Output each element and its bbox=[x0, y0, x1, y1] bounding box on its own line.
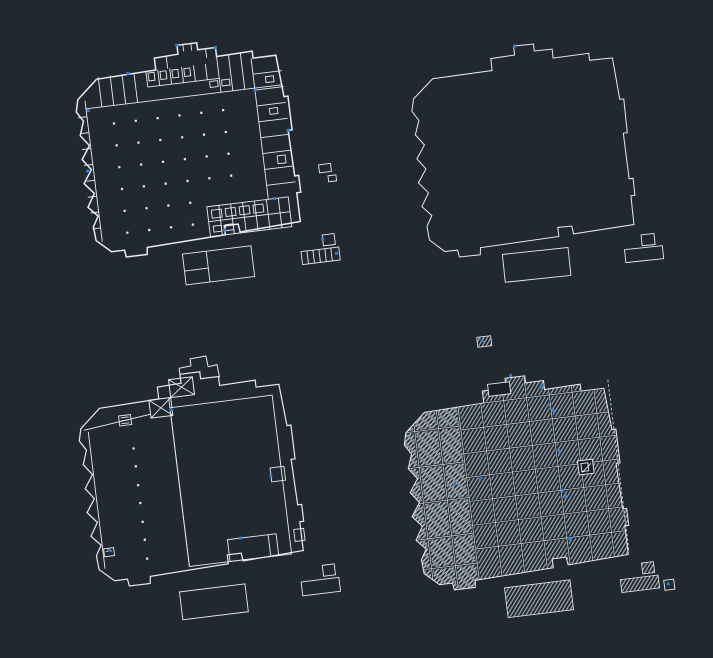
column-dot[interactable] bbox=[186, 180, 188, 182]
column-dot[interactable] bbox=[135, 120, 137, 122]
blue-marker[interactable] bbox=[561, 488, 564, 491]
column-dot[interactable] bbox=[148, 229, 150, 231]
column-dot[interactable] bbox=[126, 231, 128, 233]
hatched-annex[interactable] bbox=[641, 562, 654, 574]
blue-marker[interactable] bbox=[286, 129, 289, 132]
blue-marker[interactable] bbox=[175, 44, 178, 47]
blue-marker[interactable] bbox=[269, 473, 272, 476]
column-dot[interactable] bbox=[227, 153, 229, 155]
column-dot[interactable] bbox=[137, 484, 139, 486]
column-dot[interactable] bbox=[181, 136, 183, 138]
blue-marker[interactable] bbox=[126, 72, 129, 75]
column-dot[interactable] bbox=[118, 166, 120, 168]
column-dot[interactable] bbox=[141, 521, 143, 523]
column-dot[interactable] bbox=[170, 226, 172, 228]
column-dot[interactable] bbox=[121, 188, 123, 190]
blue-marker[interactable] bbox=[509, 374, 512, 377]
blue-marker[interactable] bbox=[87, 109, 90, 112]
blue-marker[interactable] bbox=[223, 228, 226, 231]
column-dot[interactable] bbox=[164, 182, 166, 184]
column-dot[interactable] bbox=[135, 465, 137, 467]
blue-marker[interactable] bbox=[558, 450, 561, 453]
column-dot[interactable] bbox=[225, 131, 227, 133]
column-dot[interactable] bbox=[178, 114, 180, 116]
hatched-annex[interactable] bbox=[477, 336, 492, 348]
blue-marker[interactable] bbox=[480, 339, 483, 342]
column-dot[interactable] bbox=[230, 174, 232, 176]
blue-marker[interactable] bbox=[453, 483, 456, 486]
blue-marker[interactable] bbox=[214, 46, 217, 49]
column-dot[interactable] bbox=[144, 539, 146, 541]
column-dot[interactable] bbox=[162, 161, 164, 163]
column-dot[interactable] bbox=[139, 502, 141, 504]
column-dot[interactable] bbox=[167, 204, 169, 206]
column-dot[interactable] bbox=[146, 557, 148, 559]
blue-marker[interactable] bbox=[273, 197, 276, 200]
blue-marker[interactable] bbox=[540, 385, 543, 388]
model-space-background[interactable] bbox=[0, 0, 713, 658]
blue-marker[interactable] bbox=[107, 549, 110, 552]
blue-marker[interactable] bbox=[667, 582, 670, 585]
blue-marker[interactable] bbox=[253, 88, 256, 91]
column-dot[interactable] bbox=[145, 207, 147, 209]
column-dot[interactable] bbox=[115, 144, 117, 146]
column-dot[interactable] bbox=[140, 163, 142, 165]
blue-marker[interactable] bbox=[552, 409, 555, 412]
column-dot[interactable] bbox=[159, 139, 161, 141]
column-dot[interactable] bbox=[123, 210, 125, 212]
column-dot[interactable] bbox=[205, 155, 207, 157]
column-dot[interactable] bbox=[156, 117, 158, 119]
column-dot[interactable] bbox=[137, 141, 139, 143]
drawing-canvas[interactable] bbox=[0, 0, 713, 658]
column-dot[interactable] bbox=[143, 185, 145, 187]
blue-marker[interactable] bbox=[478, 477, 481, 480]
roof-hatch-opening[interactable] bbox=[578, 459, 595, 475]
blue-marker[interactable] bbox=[335, 252, 338, 255]
column-dot[interactable] bbox=[200, 112, 202, 114]
column-dot[interactable] bbox=[189, 202, 191, 204]
blue-marker[interactable] bbox=[513, 44, 516, 47]
column-dot[interactable] bbox=[222, 109, 224, 111]
roof-hatch-opening[interactable] bbox=[488, 382, 511, 397]
column-dot[interactable] bbox=[192, 223, 194, 225]
column-dot[interactable] bbox=[113, 122, 115, 124]
cad-model-space[interactable] bbox=[0, 0, 713, 658]
blue-marker[interactable] bbox=[169, 408, 172, 411]
column-dot[interactable] bbox=[132, 447, 134, 449]
blue-marker[interactable] bbox=[321, 237, 324, 240]
blue-marker[interactable] bbox=[86, 169, 89, 172]
blue-marker[interactable] bbox=[568, 537, 571, 540]
blue-marker[interactable] bbox=[239, 536, 242, 539]
blue-marker[interactable] bbox=[564, 495, 567, 498]
column-dot[interactable] bbox=[203, 133, 205, 135]
blue-marker[interactable] bbox=[547, 403, 550, 406]
column-dot[interactable] bbox=[184, 158, 186, 160]
column-dot[interactable] bbox=[208, 177, 210, 179]
